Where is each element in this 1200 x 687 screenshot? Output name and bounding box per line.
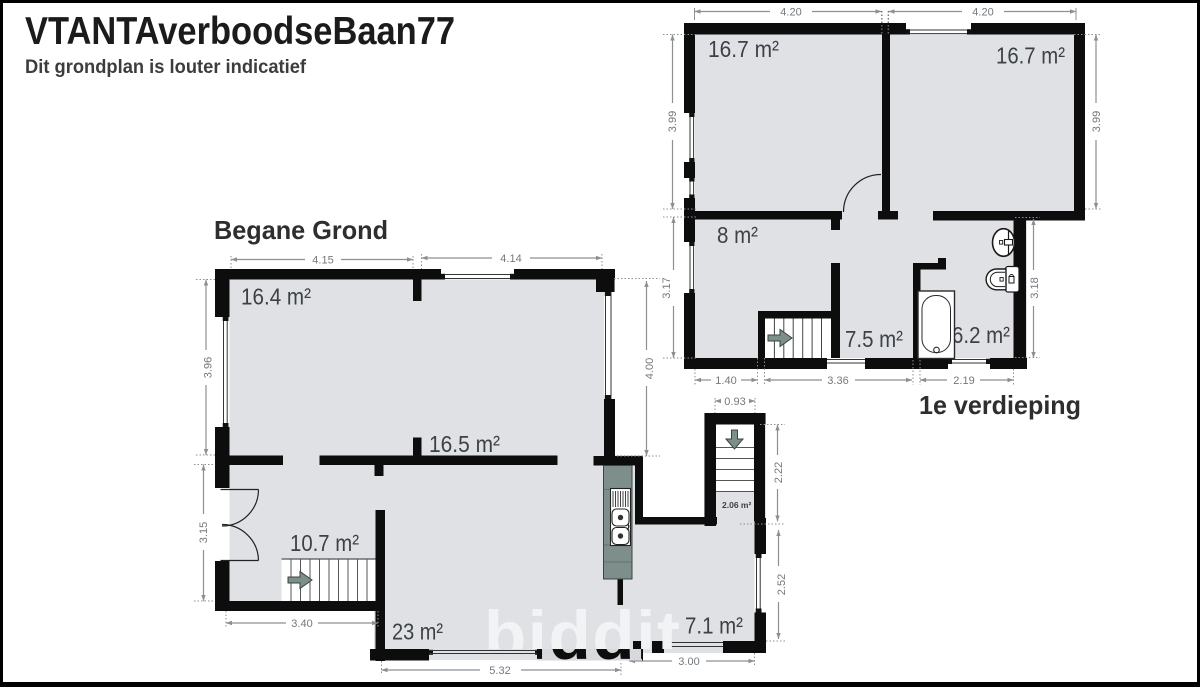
svg-text:4.14: 4.14 — [500, 253, 521, 265]
svg-text:1.40: 1.40 — [715, 375, 736, 387]
svg-text:biddit: biddit — [484, 597, 680, 674]
svg-text:2.06 m²: 2.06 m² — [722, 500, 751, 510]
svg-text:4.15: 4.15 — [312, 255, 333, 267]
svg-text:5.32: 5.32 — [489, 665, 510, 677]
svg-text:8 m²: 8 m² — [717, 222, 758, 248]
svg-text:16.7 m²: 16.7 m² — [708, 36, 779, 62]
svg-text:6.2 m²: 6.2 m² — [952, 322, 1010, 348]
svg-text:16.5 m²: 16.5 m² — [429, 431, 500, 457]
svg-text:3.17: 3.17 — [661, 277, 673, 298]
svg-text:3.40: 3.40 — [291, 618, 312, 630]
svg-text:4.00: 4.00 — [644, 358, 656, 379]
svg-text:Begane Grond: Begane Grond — [214, 215, 388, 245]
svg-text:3.99: 3.99 — [1091, 111, 1103, 132]
svg-text:0.93: 0.93 — [724, 396, 745, 408]
svg-text:2.22: 2.22 — [773, 462, 785, 483]
svg-text:3.15: 3.15 — [198, 522, 210, 543]
svg-text:4.20: 4.20 — [972, 7, 993, 19]
svg-text:16.7 m²: 16.7 m² — [996, 43, 1065, 69]
svg-text:3.00: 3.00 — [678, 656, 699, 668]
svg-text:3.99: 3.99 — [667, 111, 679, 132]
svg-text:3.96: 3.96 — [203, 357, 215, 378]
svg-text:10.7 m²: 10.7 m² — [290, 530, 359, 556]
svg-text:2.52: 2.52 — [776, 574, 788, 595]
svg-text:Dit grondplan is louter indica: Dit grondplan is louter indicatief — [25, 56, 306, 78]
svg-text:2.19: 2.19 — [953, 375, 974, 387]
svg-text:4.20: 4.20 — [780, 7, 801, 19]
svg-text:7.5 m²: 7.5 m² — [845, 326, 903, 352]
svg-text:1e verdieping: 1e verdieping — [919, 390, 1081, 420]
svg-text:3.18: 3.18 — [1029, 277, 1041, 298]
svg-text:3.36: 3.36 — [827, 375, 848, 387]
svg-text:7.1 m²: 7.1 m² — [685, 613, 743, 639]
svg-text:23 m²: 23 m² — [392, 619, 443, 645]
svg-text:16.4 m²: 16.4 m² — [241, 284, 311, 310]
svg-text:VTANTAverboodseBaan77: VTANTAverboodseBaan77 — [25, 10, 455, 53]
